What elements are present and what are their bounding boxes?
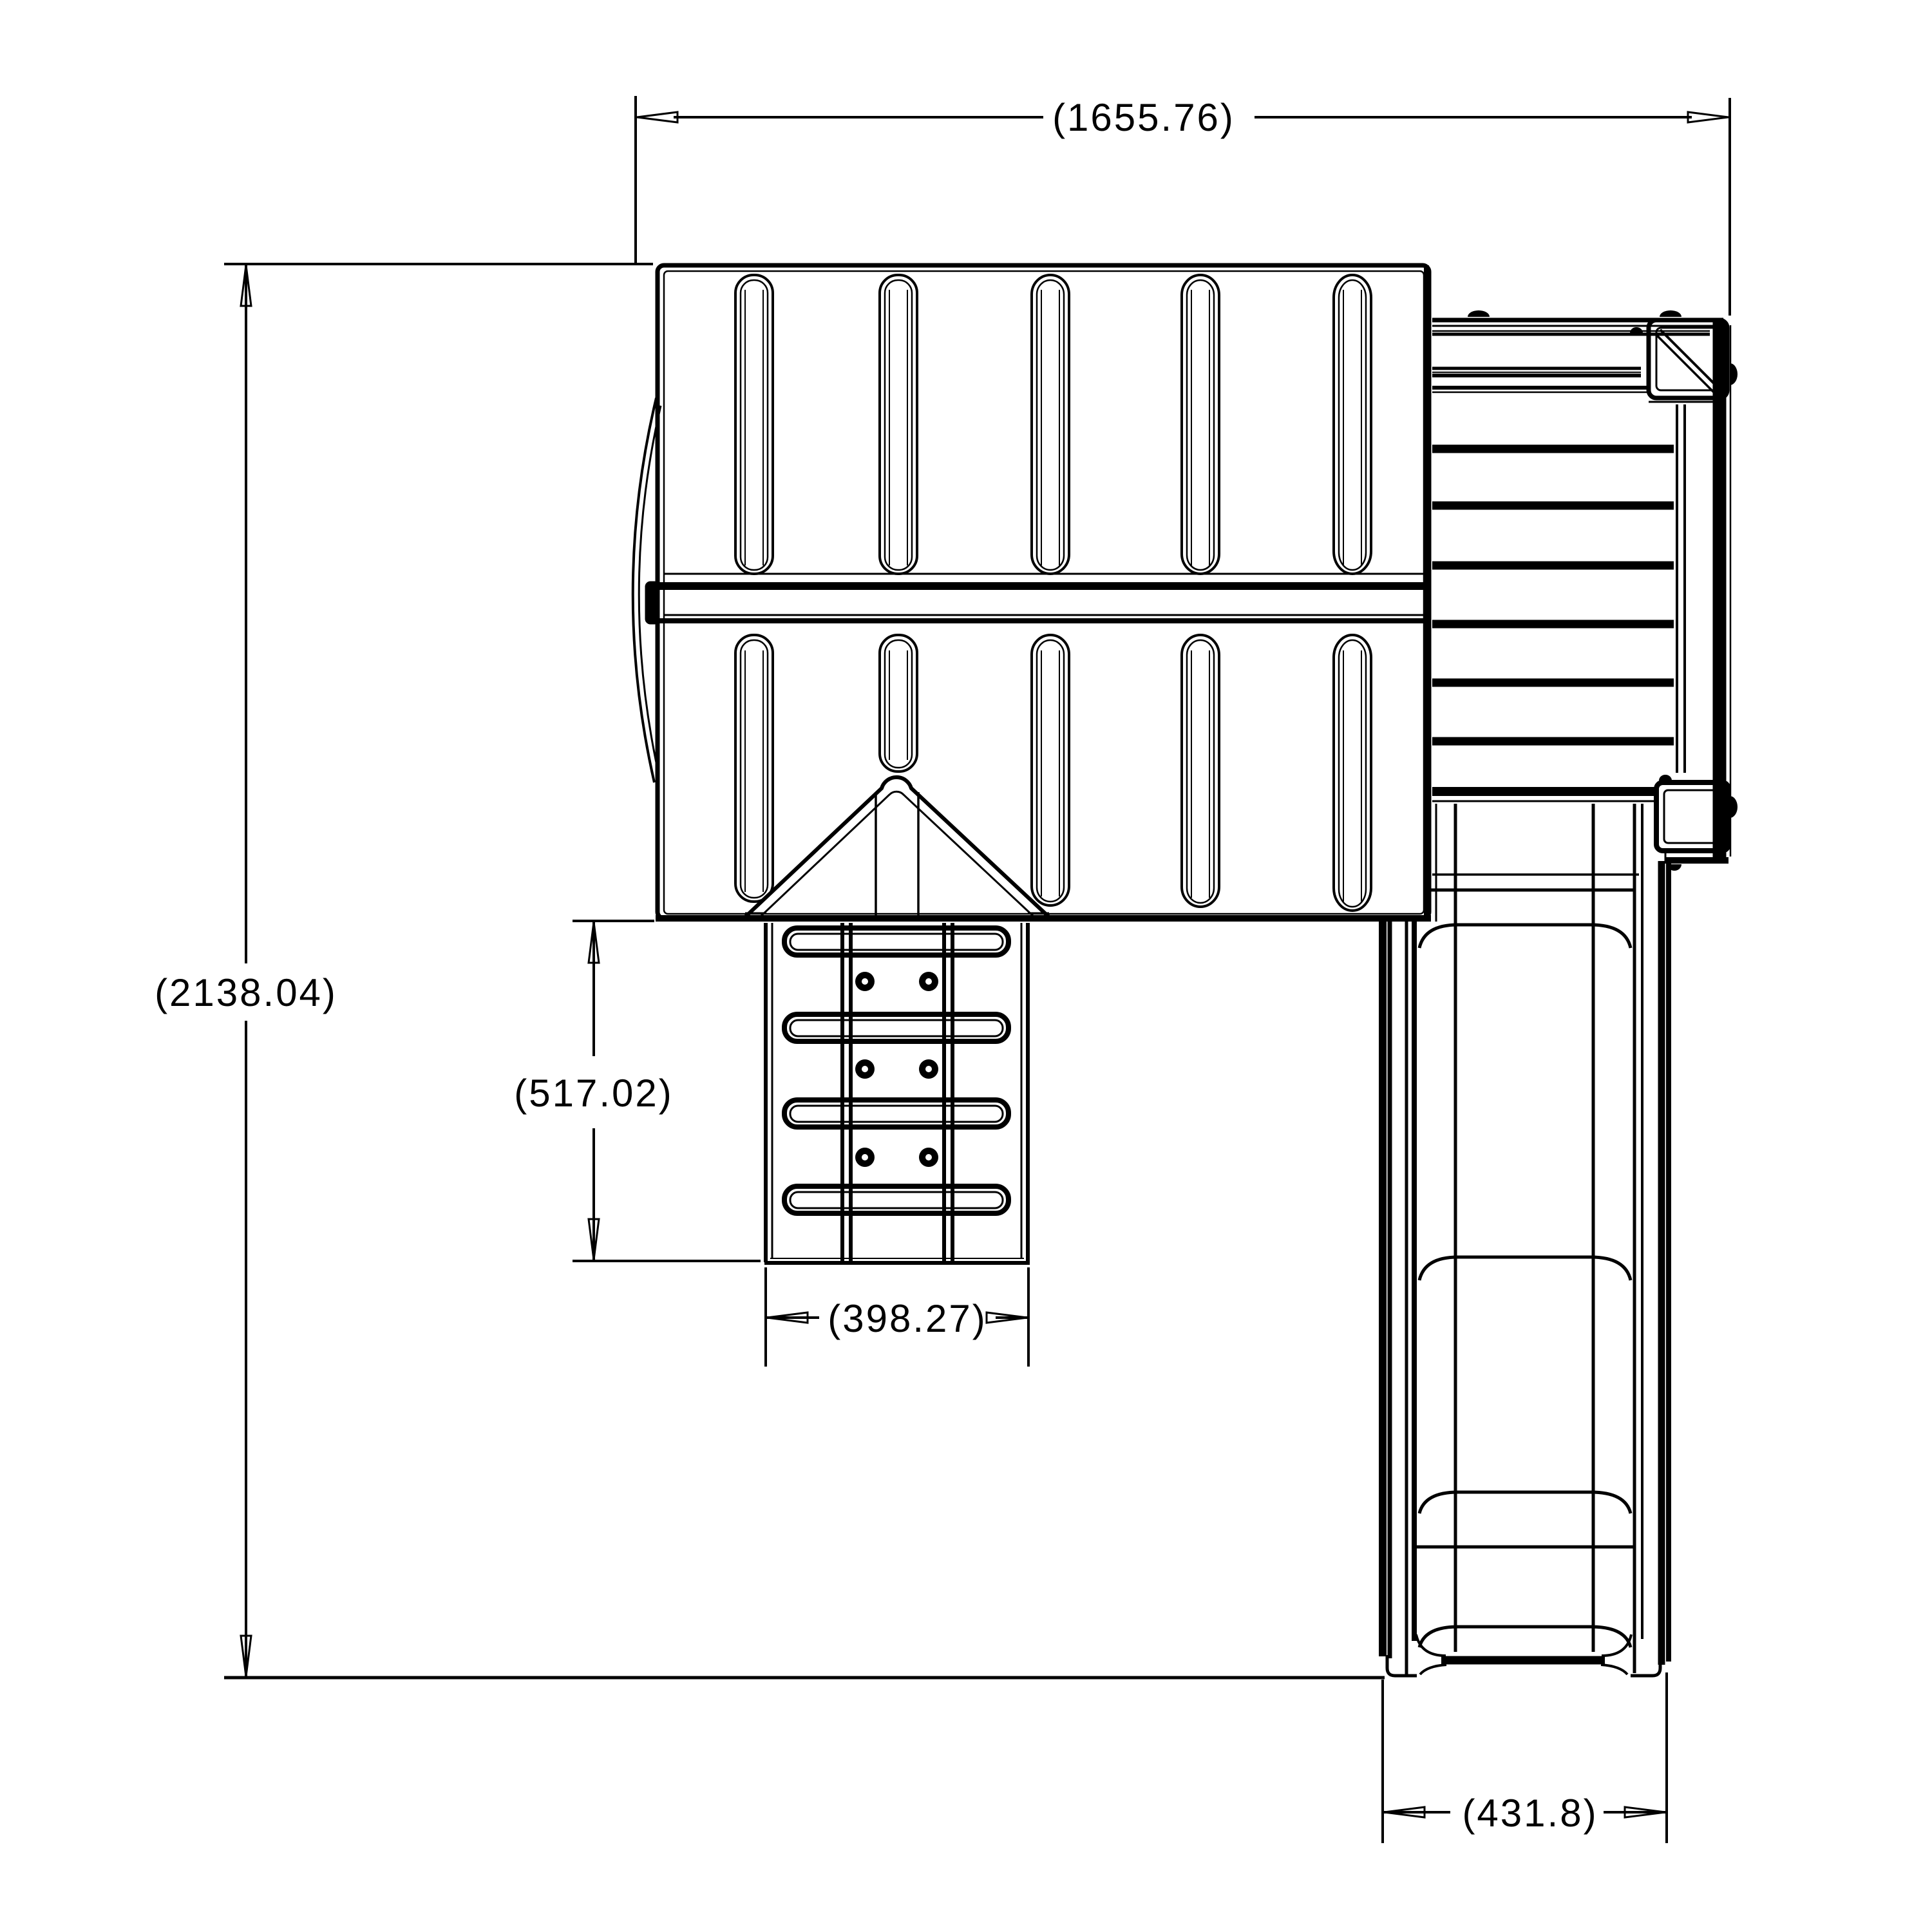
- svg-text:(1655.76): (1655.76): [1052, 96, 1235, 139]
- svg-text:(398.27): (398.27): [828, 1297, 987, 1340]
- svg-text:(431.8): (431.8): [1462, 1792, 1598, 1835]
- svg-text:(2138.04): (2138.04): [155, 971, 337, 1014]
- svg-text:(517.02): (517.02): [514, 1072, 673, 1115]
